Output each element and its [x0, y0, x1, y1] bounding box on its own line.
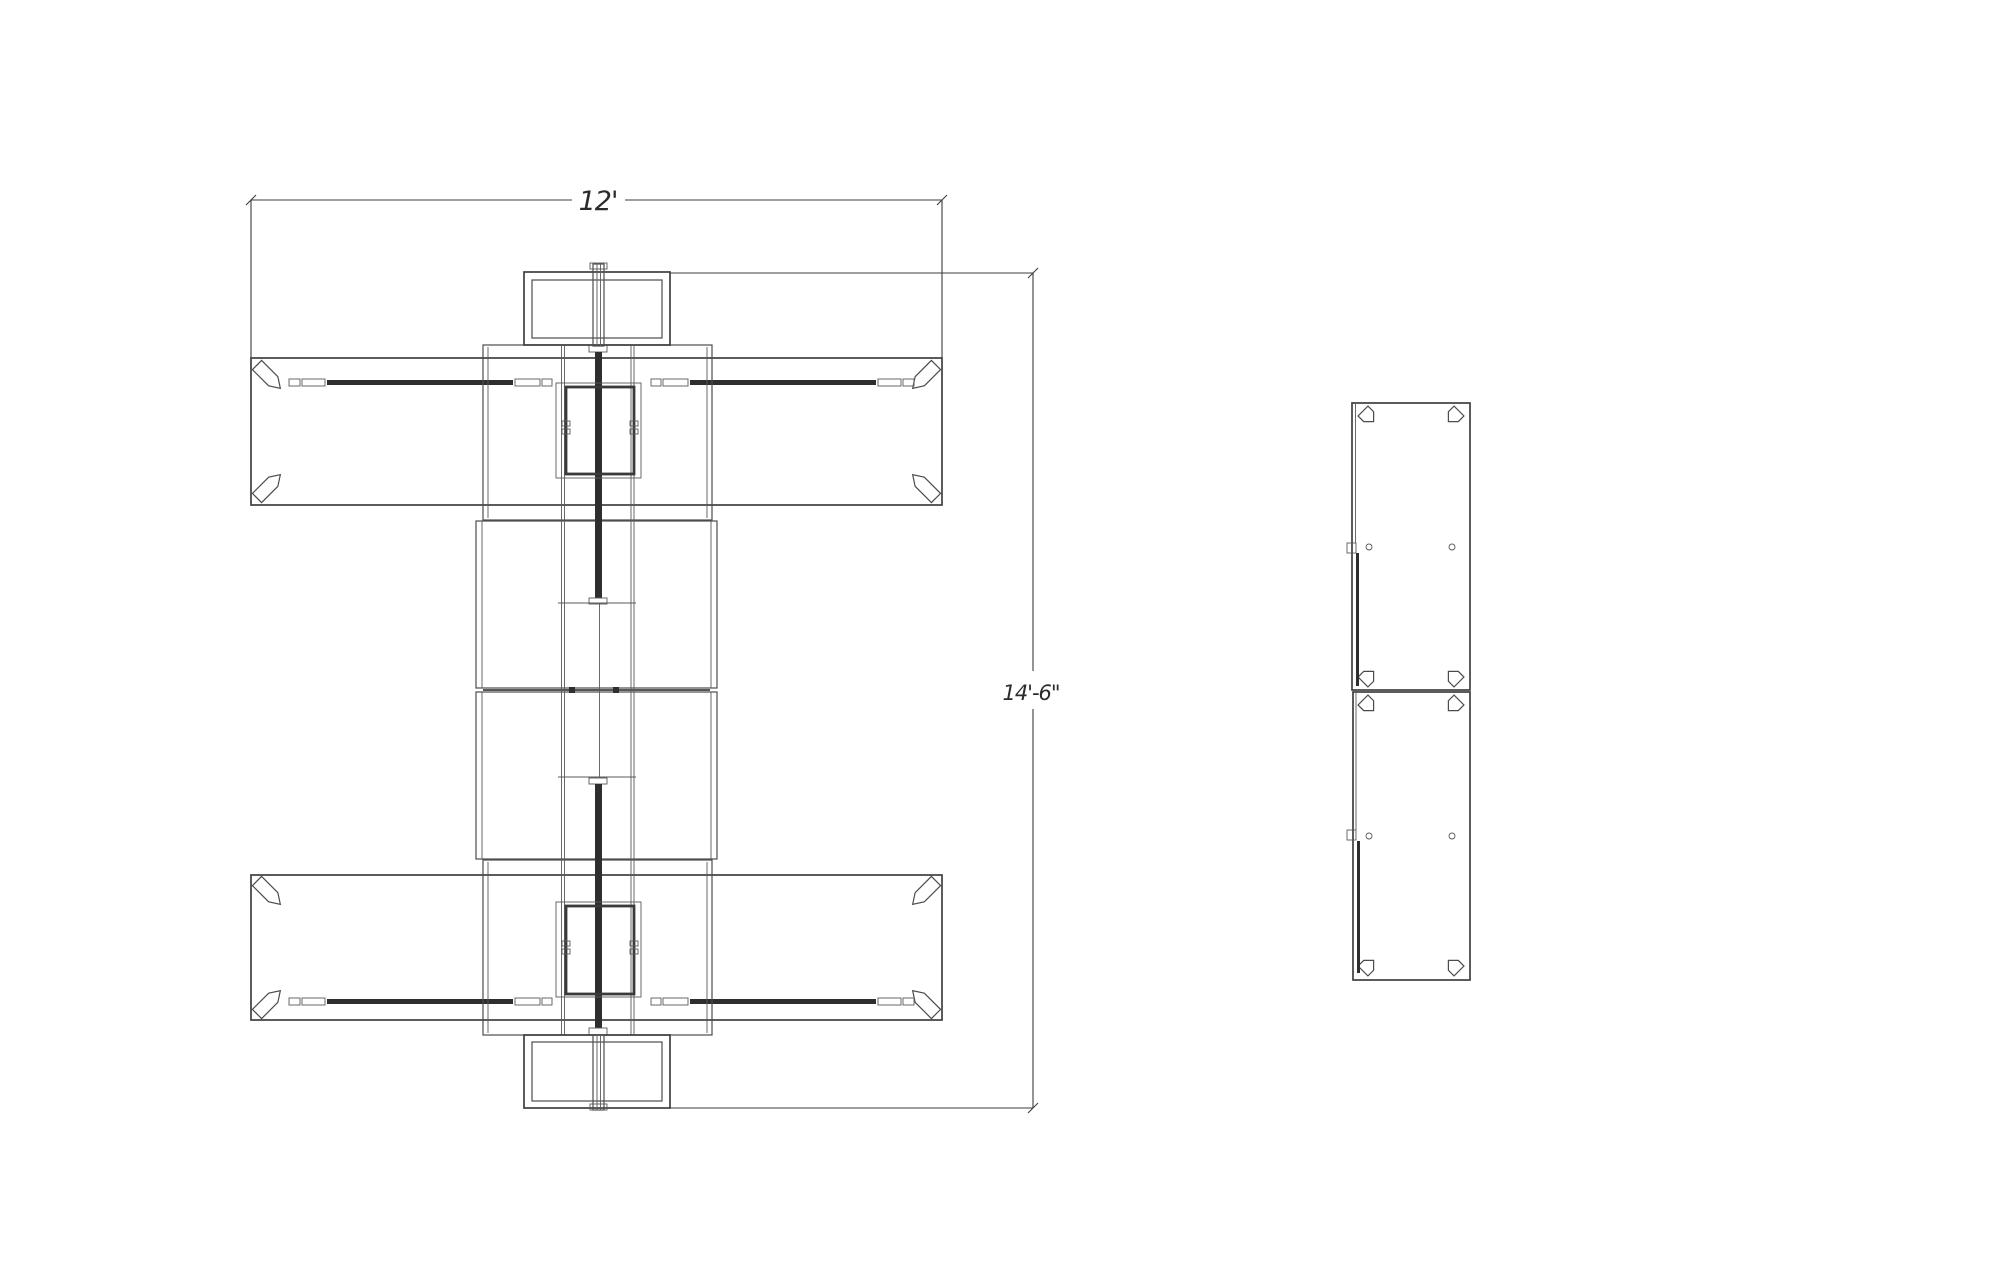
- bar-segment: [542, 998, 552, 1005]
- bar-segment: [289, 379, 300, 386]
- bar-dark: [690, 380, 876, 385]
- bar-segment: [289, 998, 300, 1005]
- technical-drawing: 12' 14'-6": [0, 0, 2000, 1286]
- light-bar-right: [651, 379, 914, 386]
- cabinet-post: [593, 264, 604, 346]
- corner-foot: [252, 360, 285, 393]
- corner-mark: [1358, 695, 1379, 716]
- corner-foot: [908, 986, 941, 1019]
- section-outline: [1353, 692, 1470, 980]
- fastener-hole: [1366, 544, 1372, 550]
- center-tower: [476, 345, 717, 1035]
- edge-bar: [1357, 841, 1360, 973]
- bar-segment: [663, 379, 688, 386]
- light-bar-right: [651, 998, 914, 1005]
- bar-dark: [327, 999, 513, 1004]
- bar-segment: [542, 379, 552, 386]
- corner-mark: [1358, 955, 1379, 976]
- corner-mark: [1358, 666, 1379, 687]
- light-bar-left: [289, 379, 552, 386]
- corner-foot: [908, 360, 941, 393]
- bar-segment: [651, 379, 661, 386]
- bar-segment: [878, 998, 901, 1005]
- post-cap: [589, 1028, 607, 1035]
- corner-mark: [1443, 695, 1464, 716]
- bar-segment: [903, 998, 914, 1005]
- hinge-notch: [1347, 830, 1356, 840]
- bar-segment: [663, 998, 688, 1005]
- side-section-top: [1347, 403, 1470, 690]
- bar-segment: [515, 379, 540, 386]
- corner-foot: [252, 986, 285, 1019]
- edge-bar: [1356, 553, 1359, 686]
- width-dimension-label: 12': [579, 186, 618, 217]
- side-view: [1347, 403, 1470, 980]
- bar-segment: [878, 379, 901, 386]
- corner-foot: [252, 876, 285, 909]
- height-dimension-label: 14'-6": [1002, 681, 1059, 705]
- top-cabinet: [524, 263, 670, 346]
- corner-mark: [1443, 666, 1464, 687]
- cabinet-post: [593, 1035, 604, 1110]
- side-section-bottom: [1347, 692, 1470, 980]
- plan-view: 12' 14'-6": [246, 186, 1060, 1113]
- joint-bolt: [613, 687, 619, 693]
- bar-segment: [515, 998, 540, 1005]
- fastener-hole: [1449, 833, 1455, 839]
- bar-segment: [903, 379, 914, 386]
- corner-mark: [1358, 406, 1379, 427]
- corner-foot: [252, 470, 285, 503]
- post-cap: [589, 778, 607, 784]
- bar-dark: [690, 999, 876, 1004]
- bar-segment: [302, 998, 325, 1005]
- corner-foot: [908, 876, 941, 909]
- fastener-hole: [1449, 544, 1455, 550]
- fastener-hole: [1366, 833, 1372, 839]
- section-outline: [1352, 403, 1470, 690]
- height-dimension: 14'-6": [670, 268, 1060, 1113]
- corner-foot: [908, 470, 941, 503]
- joint-bolt: [569, 687, 575, 693]
- corner-mark: [1443, 406, 1464, 427]
- light-bar-left: [289, 998, 552, 1005]
- bar-segment: [302, 379, 325, 386]
- corner-mark: [1443, 955, 1464, 976]
- bar-dark: [327, 380, 513, 385]
- blueprint-page: { "drawing": { "dimensions": { "width_la…: [0, 0, 2000, 1286]
- bottom-cabinet: [524, 1035, 670, 1110]
- bar-segment: [651, 998, 661, 1005]
